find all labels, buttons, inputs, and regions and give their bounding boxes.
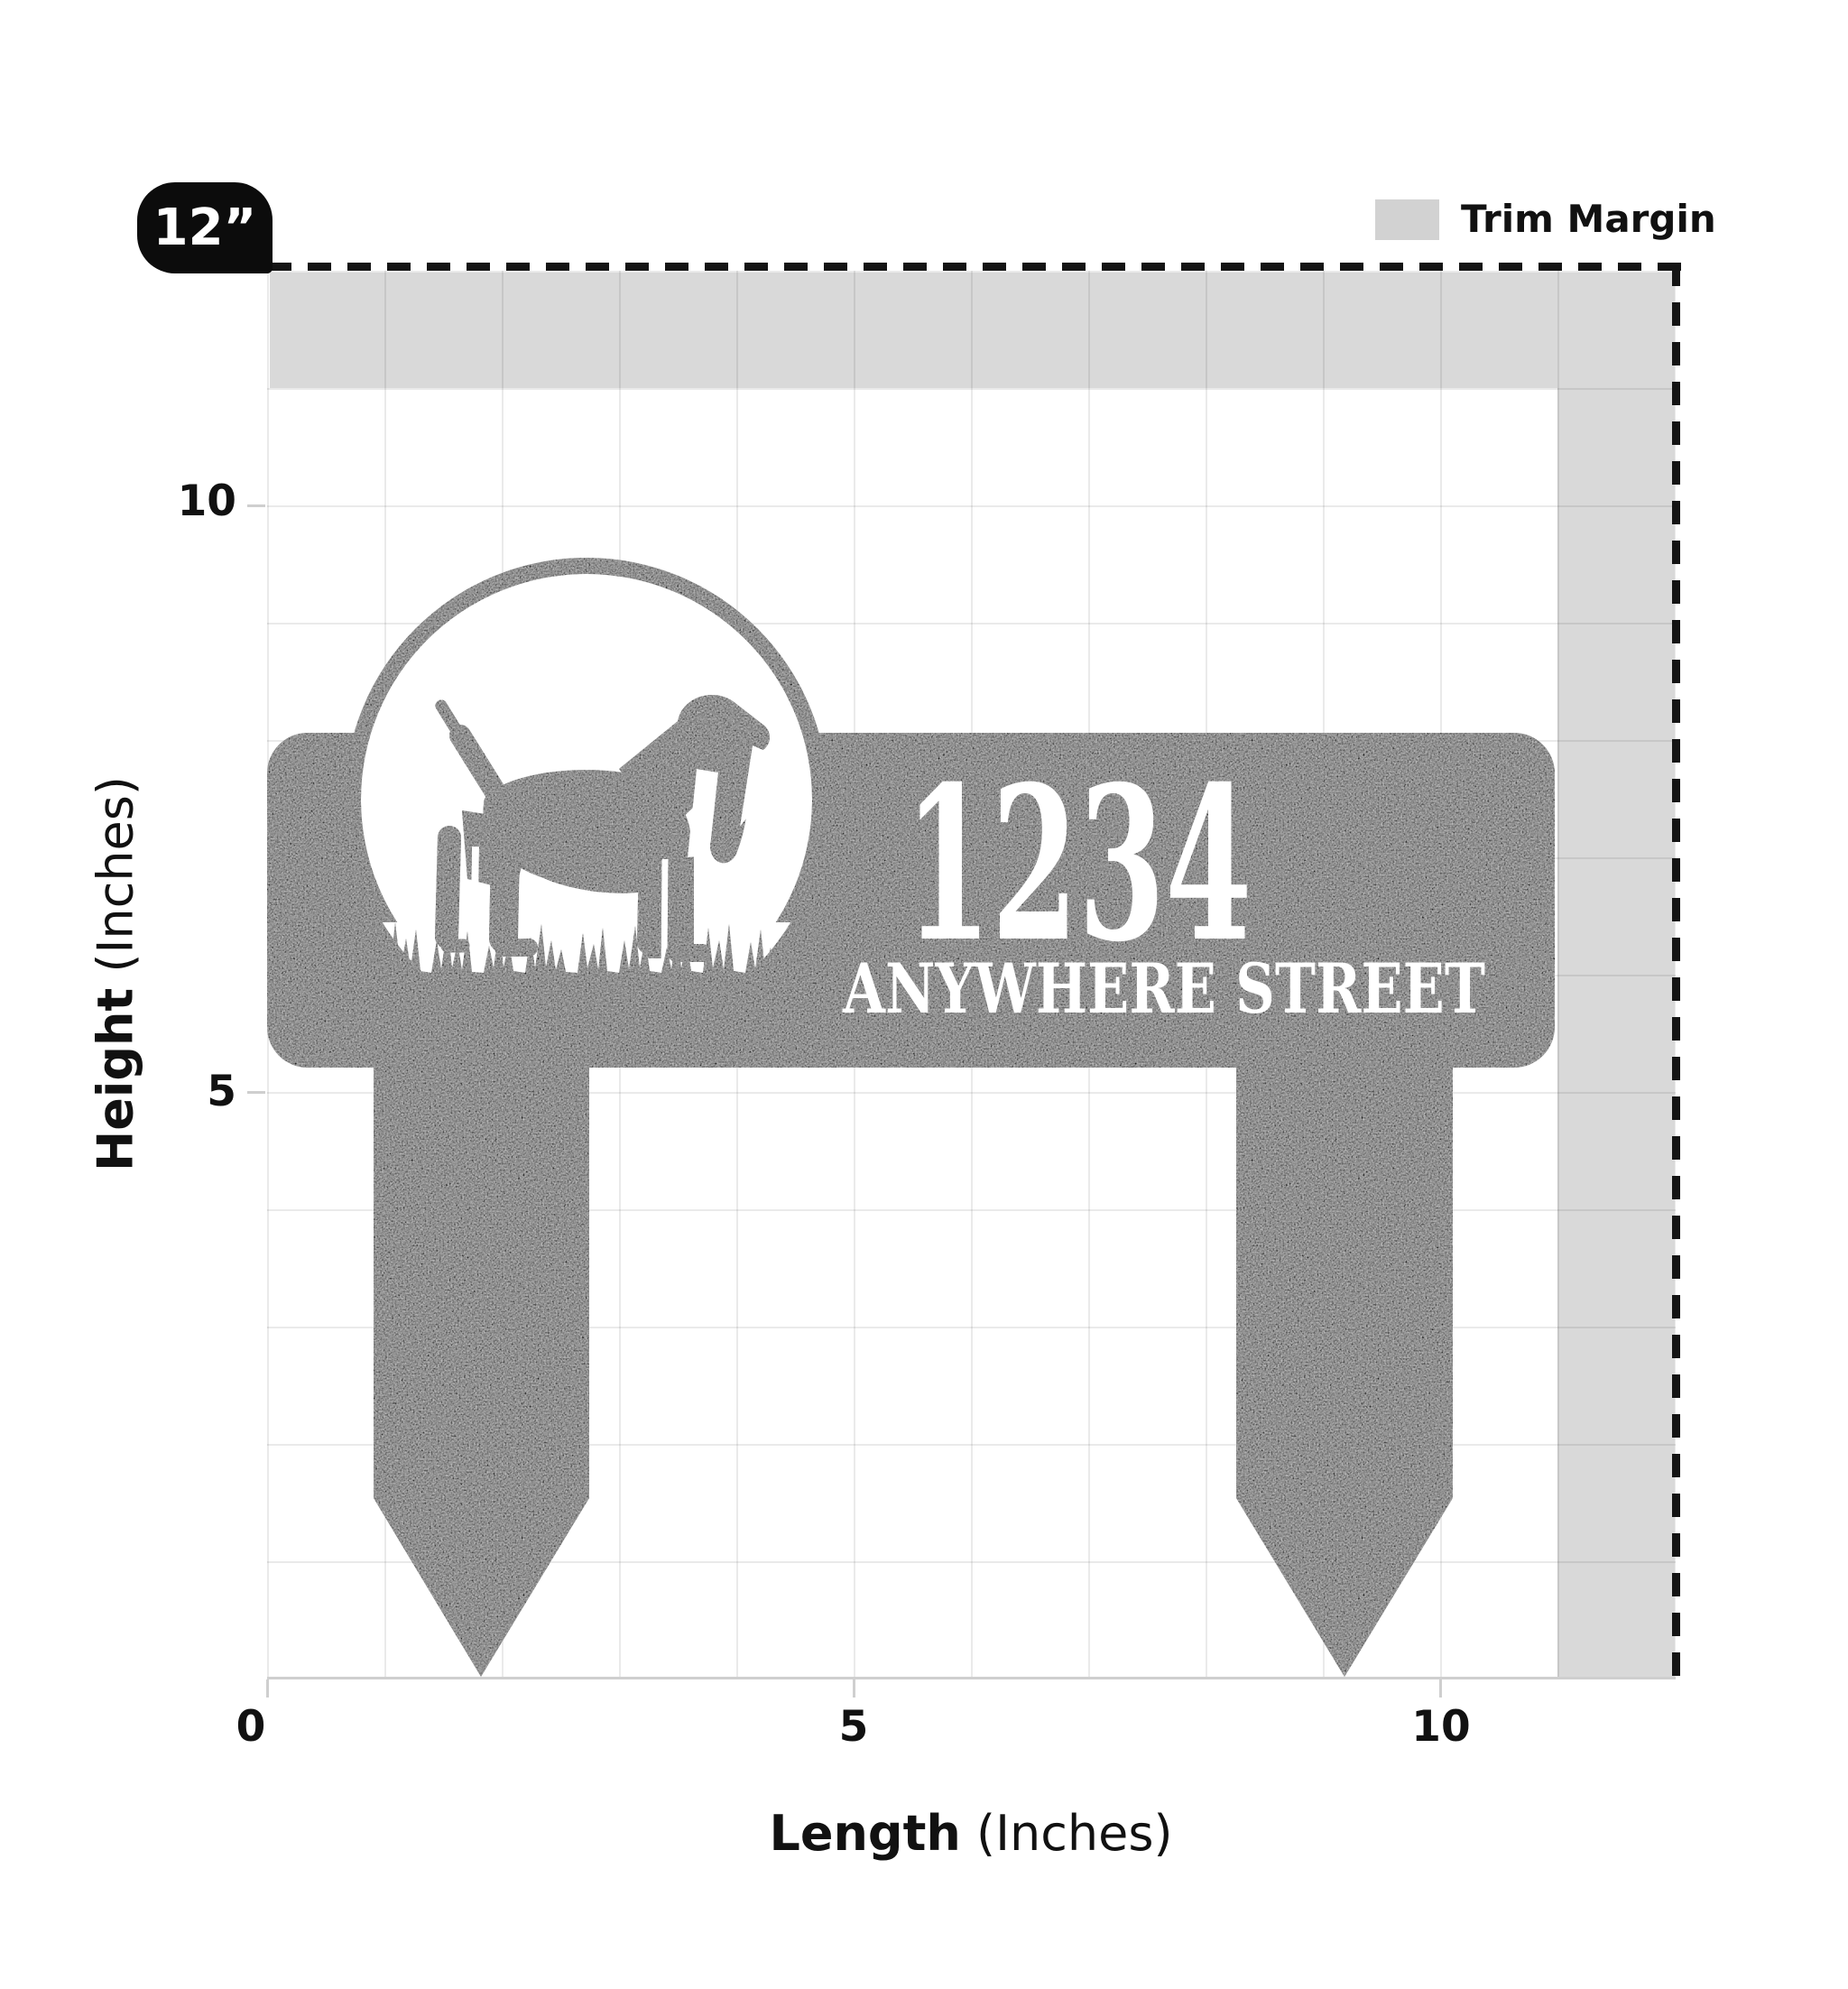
- street-name: ANYWHERE STREET: [842, 948, 1485, 1029]
- sign-stake-left: [374, 1065, 589, 1677]
- sign-stake-right: [1236, 1065, 1453, 1677]
- figure-canvas: 12” Trim Margin 0 5 10 10 5 Length (Inch…: [0, 0, 1848, 1989]
- address-sign: 1234 ANYWHERE STREET: [0, 0, 1848, 1989]
